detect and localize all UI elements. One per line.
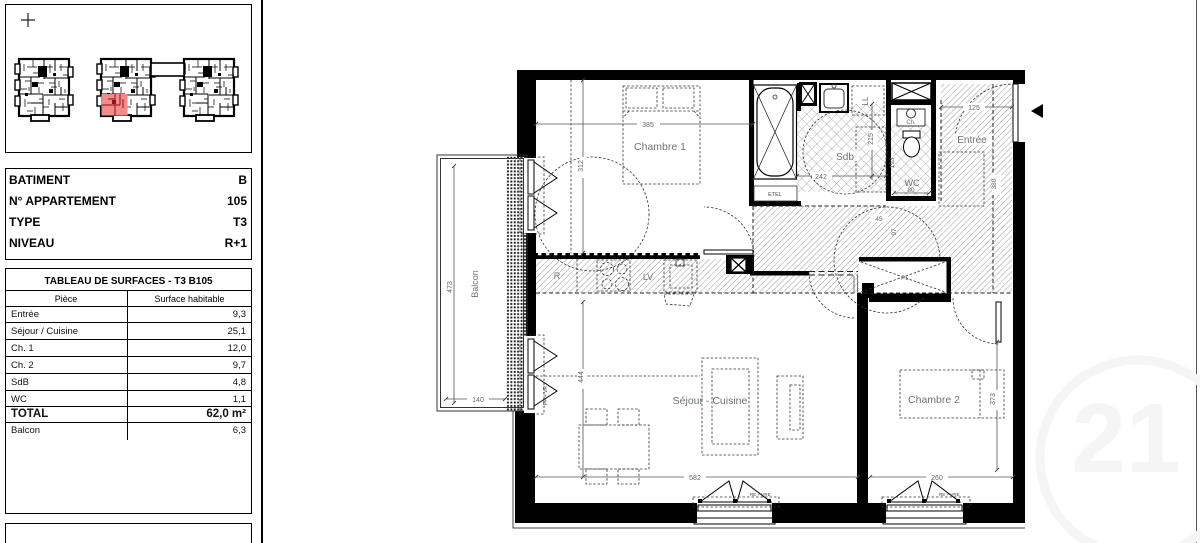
svg-text:380: 380	[991, 178, 998, 189]
svg-text:215: 215	[868, 133, 875, 145]
svg-text:Entrée: Entrée	[957, 135, 987, 146]
svg-text:97: 97	[891, 228, 898, 236]
svg-text:Chambre 1: Chambre 1	[634, 141, 686, 153]
svg-text:444: 444	[578, 371, 585, 383]
svg-text:80: 80	[907, 187, 915, 194]
svg-text:21: 21	[1071, 383, 1180, 493]
svg-text:385: 385	[642, 122, 654, 129]
svg-text:373: 373	[990, 393, 997, 405]
svg-text:242: 242	[815, 174, 827, 181]
svg-text:Ch.: Ch.	[906, 120, 916, 126]
svg-text:R: R	[554, 271, 561, 281]
svg-text:312: 312	[578, 160, 585, 172]
svg-text:45: 45	[875, 216, 883, 223]
svg-text:LL: LL	[861, 96, 870, 105]
svg-text:ETEL: ETEL	[768, 192, 782, 198]
svg-text:RE + VRE: RE + VRE	[750, 492, 771, 497]
svg-text:140: 140	[472, 397, 484, 404]
svg-text:260: 260	[931, 475, 943, 482]
svg-text:473: 473	[447, 281, 454, 293]
svg-text:RE + VRE: RE + VRE	[939, 492, 960, 497]
svg-text:PL: PL	[901, 275, 909, 282]
svg-text:193: 193	[889, 157, 896, 168]
svg-text:582: 582	[689, 475, 701, 482]
svg-text:Séjour - Cuisine: Séjour - Cuisine	[673, 395, 748, 407]
svg-text:Balcon: Balcon	[470, 270, 480, 298]
svg-text:125: 125	[968, 105, 980, 112]
svg-text:PF + VR: PF + VR	[543, 386, 549, 405]
svg-text:Sdb: Sdb	[836, 152, 854, 163]
svg-text:Chambre 2: Chambre 2	[908, 394, 960, 406]
svg-text:LV: LV	[643, 272, 653, 282]
